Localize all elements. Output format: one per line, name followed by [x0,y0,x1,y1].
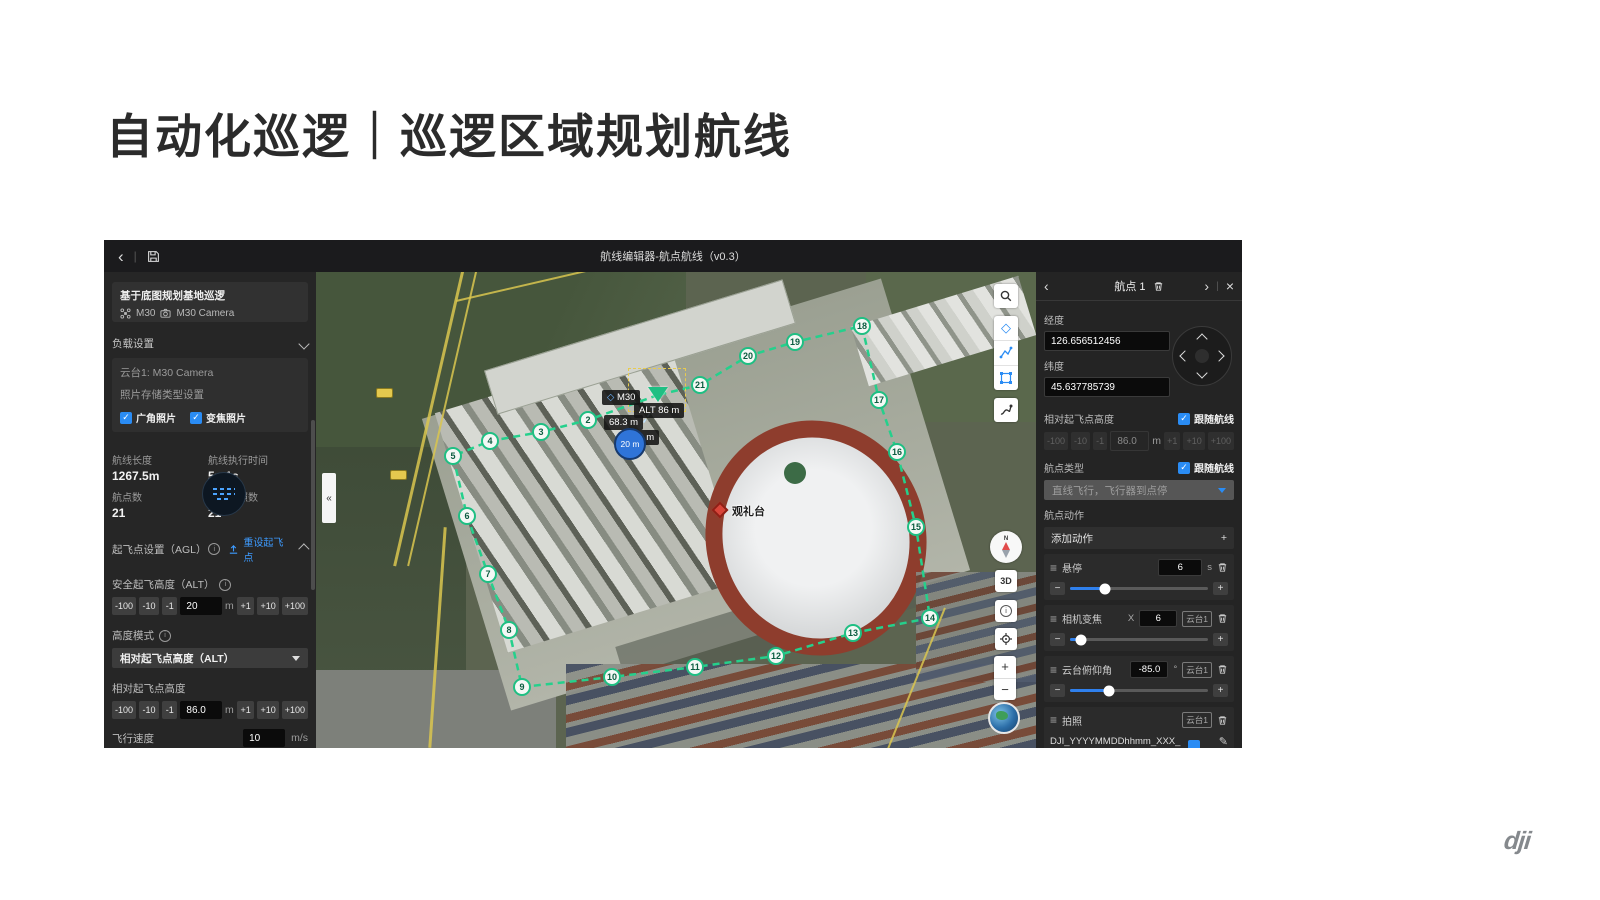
relative-altitude-input[interactable]: 86.0 [180,701,222,719]
plus-100-button[interactable]: +100 [282,701,308,719]
follow-route-label: 跟随航线 [1194,411,1234,426]
info-icon[interactable]: i [219,579,231,591]
waypoint-marker-3[interactable]: 3 [532,423,550,441]
minus-100-button[interactable]: -100 [1044,432,1068,450]
meter-unit: m [1152,435,1161,447]
slider-thumb[interactable] [1099,583,1110,594]
chevron-up-icon[interactable] [298,543,309,554]
waypoint-marker-15[interactable]: 15 [907,518,925,536]
safe-altitude-label: 安全起飞高度（ALT） [112,577,214,592]
globe-layer-button[interactable] [988,702,1020,734]
zoom-value-input[interactable]: 6 [1139,610,1177,627]
compass-needle-south [1002,550,1010,558]
plus-1-button[interactable]: +1 [237,701,255,719]
pin-icon: ◇ [607,392,614,403]
action-name: 相机变焦 [1062,611,1123,626]
waypoint-marker-6[interactable]: 6 [458,507,476,525]
sidebar-scrollbar[interactable] [311,420,315,590]
waypoint-marker-13[interactable]: 13 [844,624,862,642]
waypoint-marker-9[interactable]: 9 [513,678,531,696]
clipped-checkbox[interactable] [1188,740,1200,748]
gimbal-badge: 云台1 [1182,712,1212,728]
relative-altitude-stepper: -100 -10 -1 86.0 m +1 +10 +100 [112,701,308,719]
checkbox-checked-icon[interactable]: ✓ [1178,462,1190,474]
safe-altitude-input[interactable]: 20 [180,597,222,615]
checkbox-checked-icon[interactable]: ✓ [1178,413,1190,425]
waypoint-actions-label: 航点动作 [1044,507,1234,522]
follow-route-checkbox[interactable]: ✓ 跟随航线 [1178,460,1234,475]
slider-thumb[interactable] [1103,685,1114,696]
minus-10-button[interactable]: -10 [1071,432,1090,450]
minus-1-button[interactable]: -1 [162,597,177,615]
waypoint-count-value: 21 [112,506,208,520]
zoom-out-button[interactable]: − [994,679,1016,701]
action-card-hover: ≡ 悬停 6 s − + [1044,554,1234,600]
reset-takeoff-icon[interactable] [228,544,239,555]
follow-route-label: 跟随航线 [1194,460,1234,475]
slider-minus-button[interactable]: − [1050,582,1065,595]
meter-unit: m [225,704,234,716]
takeoff-point-icon [202,472,246,516]
polyline-tool-button[interactable] [994,341,1018,366]
camera-icon [160,308,171,319]
gimbal-label: 云台1: M30 Camera [120,365,300,380]
checkbox-checked-icon[interactable]: ✓ [120,412,132,424]
plus-10-button[interactable]: +10 [257,701,278,719]
relative-altitude-label: 相对起飞点高度 [112,681,186,696]
waypoint-type-dropdown[interactable]: 直线飞行，飞行器到点停 [1044,480,1234,500]
slider-plus-button[interactable]: + [1213,633,1228,646]
add-action-row[interactable]: 添加动作 + [1044,527,1234,549]
map-canvas[interactable]: 23456789101112131415161718192021 ◇ M30 A… [316,272,1036,748]
mission-card[interactable]: 基于底图规划基地巡逻 M30 M30 Camera [112,282,308,322]
waypoint-marker-11[interactable]: 11 [686,658,704,676]
action-card-camera-zoom: ≡ 相机变焦 X 6 云台1 − + [1044,605,1234,651]
drone-icon [120,308,131,319]
altitude-mode-dropdown[interactable]: 相对起飞点高度（ALT） [112,648,308,668]
zoom-in-button[interactable]: + [994,656,1016,679]
route-layer [316,272,1036,748]
add-action-plus-icon[interactable]: + [1221,532,1227,544]
chevron-down-icon[interactable] [298,338,309,349]
minus-100-button[interactable]: -100 [112,701,136,719]
zoom-control: + − [994,656,1016,700]
slider-plus-button[interactable]: + [1213,582,1228,595]
trash-icon[interactable] [1217,664,1228,675]
plus-1-button[interactable]: +1 [1164,432,1180,450]
next-waypoint-icon[interactable]: › [1204,278,1209,294]
waypoint-marker-10[interactable]: 10 [603,668,621,686]
action-card-take-photo: ≡ 拍照 云台1 DJI_YYYYMMDDhhmm_XXX_ ✎ [1044,707,1234,748]
caret-down-icon [1218,488,1226,493]
wp-altitude-stepper: -100 -10 -1 86.0 m +1 +10 +100 [1044,431,1234,451]
payload-settings-label: 负载设置 [112,336,154,351]
waypoint-panel-title: 航点 1 [1114,281,1145,293]
waypoint-detail-panel: ‹ 航点 1 › | × 经度 126.656512456 纬度 45.6377… [1036,272,1242,748]
reset-takeoff-link[interactable]: 重设起飞点 [243,534,292,564]
safe-altitude-stepper: -100 -10 -1 20 m +1 +10 +100 [112,597,308,615]
delete-waypoint-icon[interactable] [1153,281,1164,292]
waypoint-marker-4[interactable]: 4 [481,432,499,450]
slider-thumb[interactable] [1076,634,1087,645]
takeoff-marker[interactable]: 20 m [614,428,646,460]
seconds-unit: s [1207,562,1212,573]
waypoint-marker-21[interactable]: 21 [691,376,709,394]
storage-type-label: 照片存储类型设置 [120,387,300,402]
caret-down-icon [292,656,300,661]
map-search-button[interactable] [994,284,1018,308]
close-panel-icon[interactable]: × [1226,278,1234,294]
speed-unit: m/s [291,732,308,744]
zoom-photo-checkbox[interactable]: ✓ 变焦照片 [190,410,246,425]
payload-panel: 云台1: M30 Camera 照片存储类型设置 ✓ 广角照片 ✓ 变焦照片 [112,358,308,432]
nudge-right-icon[interactable] [1213,350,1224,361]
route-time-label: 航线执行时间 [208,452,308,467]
route-length-value: 1267.5m [112,469,208,483]
action-name: 云台俯仰角 [1062,662,1125,677]
minus-100-button[interactable]: -100 [112,597,136,615]
selected-waypoint-marker[interactable] [648,387,668,402]
action-name: 悬停 [1062,560,1153,575]
drag-handle-icon[interactable]: ≡ [1050,714,1057,726]
gimbal-pitch-slider: − + [1050,684,1228,697]
edit-filename-icon[interactable]: ✎ [1219,735,1228,748]
wide-photo-label: 广角照片 [136,410,176,425]
info-icon[interactable]: i [159,630,171,642]
poi-label: 观礼台 [732,503,765,519]
plus-1-button[interactable]: +1 [237,597,255,615]
plus-100-button[interactable]: +100 [1208,432,1234,450]
minus-1-button[interactable]: -1 [1093,432,1107,450]
gimbal-badge: 云台1 [1182,611,1212,627]
drag-handle-icon[interactable]: ≡ [1050,562,1057,574]
waypoint-marker-17[interactable]: 17 [870,391,888,409]
waypoint-marker-14[interactable]: 14 [921,609,939,627]
flight-speed-input[interactable]: 10 [243,729,285,747]
waypoint-marker-12[interactable]: 12 [767,647,785,665]
pitch-value-input[interactable]: -85.0 [1130,661,1168,678]
waypoint-marker-20[interactable]: 20 [739,347,757,365]
prev-waypoint-icon[interactable]: ‹ [1044,278,1049,294]
payload-settings-header[interactable]: 负载设置 [112,336,308,351]
drag-handle-icon[interactable]: ≡ [1050,664,1057,676]
distance-badge-1: 68.3 m [604,415,643,430]
minus-10-button[interactable]: -10 [139,597,159,615]
plus-10-button[interactable]: +10 [1183,432,1204,450]
meter-unit: m [225,600,234,612]
nudge-dpad[interactable] [1172,326,1232,386]
dji-logo: dji [1502,827,1531,856]
plus-10-button[interactable]: +10 [257,597,278,615]
map-info-button[interactable]: i [995,600,1017,622]
dpad-center [1195,349,1209,363]
waypoint-marker-5[interactable]: 5 [444,447,462,465]
waypoint-marker-8[interactable]: 8 [500,621,518,639]
waypoint-count-label: 航点数 [112,489,208,504]
map-3d-button[interactable]: 3D [995,570,1017,592]
minus-10-button[interactable]: -10 [139,701,159,719]
photo-filename: DJI_YYYYMMDDhhmm_XXX_ [1050,736,1180,747]
sidebar-collapse-handle[interactable]: « [322,473,336,523]
gimbal-badge: 云台1 [1182,662,1212,678]
trash-icon[interactable] [1217,562,1228,573]
camera-zoom-slider: − + [1050,633,1228,646]
altitude-mode-value: 相对起飞点高度（ALT） [120,651,234,666]
draw-tools-group: ◇ [994,316,1018,390]
longitude-label: 经度 [1044,312,1234,327]
info-icon[interactable]: i [208,543,220,555]
locate-button[interactable] [995,628,1017,650]
wp-altitude-input[interactable]: 86.0 [1110,431,1149,451]
hover-time-input[interactable]: 6 [1158,559,1202,576]
drone-model: M30 [136,308,155,319]
app-title: 航线编辑器-航点航线（v0.3） [104,248,1242,264]
latitude-input[interactable]: 45.637785739 [1044,377,1170,397]
wide-photo-checkbox[interactable]: ✓ 广角照片 [120,410,176,425]
compass-needle-north [1002,542,1010,550]
action-card-gimbal-pitch: ≡ 云台俯仰角 -85.0 ° 云台1 − + [1044,656,1234,702]
waypoint-marker-18[interactable]: 18 [853,317,871,335]
wp-relative-altitude-label: 相对起飞点高度 [1044,411,1114,426]
hover-slider: − + [1050,582,1228,595]
nudge-down-icon[interactable] [1196,367,1207,378]
slider-plus-button[interactable]: + [1213,684,1228,697]
trash-icon[interactable] [1217,715,1228,726]
nudge-left-icon[interactable] [1179,350,1190,361]
longitude-input[interactable]: 126.656512456 [1044,331,1170,351]
mission-name: 基于底图规划基地巡逻 [120,288,300,303]
waypoint-panel-header: ‹ 航点 1 › | × [1036,272,1242,301]
zoom-photo-label: 变焦照片 [206,410,246,425]
minus-1-button[interactable]: -1 [162,701,177,719]
drag-handle-icon[interactable]: ≡ [1050,613,1057,625]
camera-model: M30 Camera [176,308,234,319]
trash-icon[interactable] [1217,613,1228,624]
waypoint-marker-19[interactable]: 19 [786,333,804,351]
compass[interactable]: N [990,531,1022,563]
waypoint-type-label: 航点类型 [1044,460,1084,475]
polygon-tool-button[interactable] [994,366,1018,390]
altitude-mode-label: 高度模式 [112,628,154,643]
plus-100-button[interactable]: +100 [282,597,308,615]
waypoint-type-value: 直线飞行，飞行器到点停 [1052,483,1168,498]
mission-settings-sidebar: 基于底图规划基地巡逻 M30 M30 Camera 负载设置 云台1: M30 … [104,272,316,748]
route-editor-window: ‹ | 航线编辑器-航点航线（v0.3） 基于底图规划基地巡逻 M30 M30 … [104,240,1242,748]
takeoff-settings-label: 起飞点设置（AGL） [112,542,204,557]
waypoint-marker-16[interactable]: 16 [888,443,906,461]
nudge-up-icon[interactable] [1196,333,1207,344]
app-topbar: ‹ | 航线编辑器-航点航线（v0.3） [104,240,1242,273]
route-length-label: 航线长度 [112,452,208,467]
waypoint-marker-7[interactable]: 7 [479,565,497,583]
slider-minus-button[interactable]: − [1050,684,1065,697]
slide-title: 自动化巡逻｜巡逻区域规划航线 [106,98,792,167]
waypoint-tool-button[interactable]: ◇ [994,316,1018,341]
action-name: 拍照 [1062,713,1177,728]
degree-unit: ° [1173,664,1177,675]
follow-route-checkbox[interactable]: ✓ 跟随航线 [1178,411,1234,426]
slider-minus-button[interactable]: − [1050,633,1065,646]
measure-tool-button[interactable] [994,398,1018,422]
waypoint-marker-2[interactable]: 2 [579,411,597,429]
checkbox-checked-icon[interactable]: ✓ [190,412,202,424]
flight-speed-label: 飞行速度 [112,731,154,746]
zoom-x-prefix: X [1128,613,1134,624]
takeoff-settings-header: 起飞点设置（AGL） i 重设起飞点 [112,534,308,564]
add-action-label: 添加动作 [1051,531,1093,546]
